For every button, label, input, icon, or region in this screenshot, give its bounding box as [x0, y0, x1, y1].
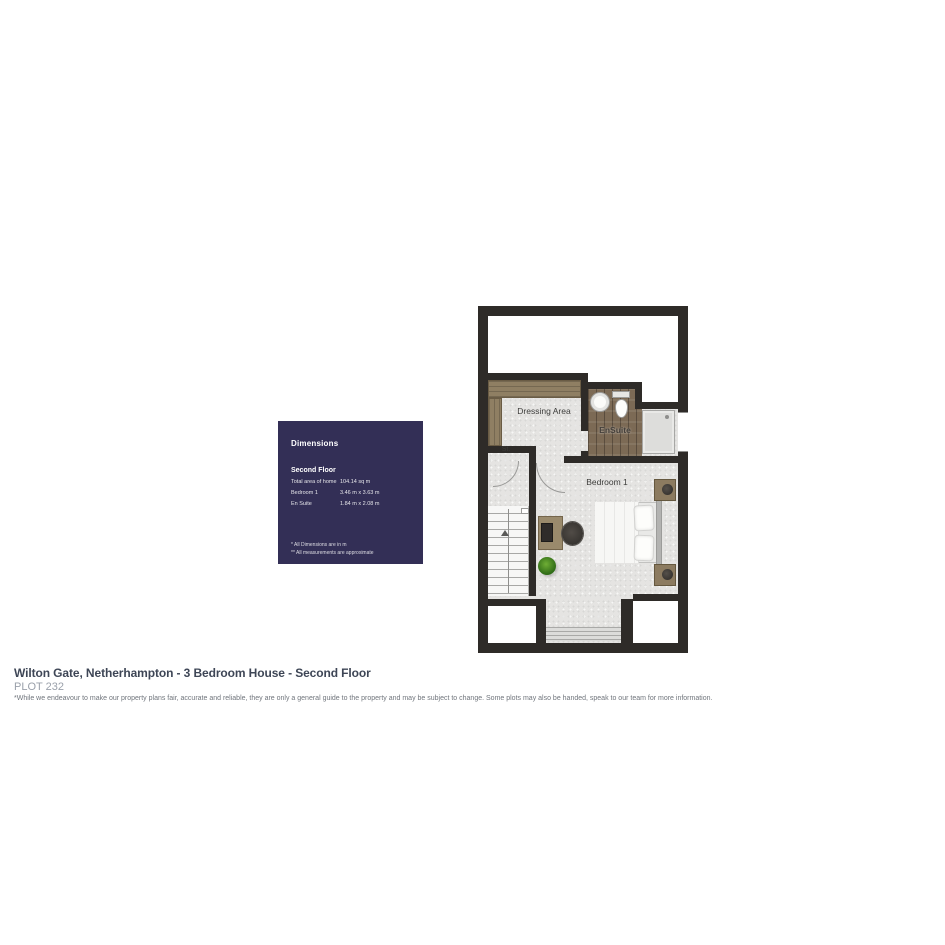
- desk-chair: [562, 522, 583, 545]
- wall: [621, 599, 633, 643]
- void-bottom-right: [633, 601, 678, 643]
- sink-icon: [590, 392, 610, 412]
- wall: [581, 456, 678, 463]
- shower-tray: [642, 410, 675, 454]
- outer-wall-right: [678, 452, 688, 653]
- page-title: Wilton Gate, Netherhampton - 3 Bedroom H…: [14, 666, 371, 680]
- bedside-lamp-icon: [662, 484, 673, 495]
- stairs-landing-mark: [521, 508, 529, 514]
- void-top: [488, 316, 678, 373]
- room-label-dressing-area: Dressing Area: [502, 406, 586, 416]
- room-label-ensuite: EnSuite: [584, 425, 646, 435]
- wall: [581, 382, 642, 389]
- room-label-bedroom-1: Bedroom 1: [576, 477, 638, 487]
- plot-number: PLOT 232: [14, 681, 64, 693]
- wall: [564, 456, 588, 463]
- dimension-label: Total area of home: [291, 479, 337, 485]
- bedside-lamp-icon: [662, 569, 673, 580]
- wall: [536, 599, 546, 643]
- outer-wall-bottom: [478, 643, 688, 653]
- outer-wall-right: [678, 306, 688, 412]
- dimensions-floor-label: Second Floor: [291, 467, 336, 474]
- disclaimer-text: *While we endeavour to make our property…: [14, 695, 712, 702]
- stairs-direction-arrow-icon: [501, 530, 509, 536]
- dimension-row: Bedroom 1 3.46 m x 3.63 m: [291, 490, 416, 496]
- toilet-cistern-icon: [612, 391, 630, 398]
- wall: [635, 402, 678, 409]
- bed-duvet: [595, 502, 639, 563]
- dimension-value: 1.84 m x 2.08 m: [340, 501, 379, 507]
- dimension-value: 104.14 sq m: [340, 479, 370, 485]
- wall: [488, 373, 588, 380]
- bed-headboard: [656, 500, 662, 565]
- dimension-label: En Suite: [291, 501, 312, 507]
- shower-drain-icon: [665, 415, 669, 419]
- wall: [633, 594, 678, 601]
- wardrobe-top: [488, 380, 581, 398]
- void-step-2: [638, 366, 678, 402]
- pillow: [633, 504, 654, 531]
- floor-plan: Dressing Area St. EnSuite Bedroom 1: [478, 306, 688, 653]
- dimensions-footnote: ** All measurements are approximate: [291, 550, 374, 556]
- window-bay-lines: [546, 627, 621, 641]
- dimensions-panel: Dimensions Second Floor Total area of ho…: [278, 421, 423, 564]
- dimension-value: 3.46 m x 3.63 m: [340, 490, 379, 496]
- dimensions-panel-title: Dimensions: [291, 439, 338, 448]
- pillow: [634, 535, 655, 562]
- room-label-storage: St.: [494, 446, 518, 453]
- stairs-rail: [508, 509, 509, 593]
- plant-icon: [538, 557, 556, 575]
- outer-wall-top: [478, 306, 688, 316]
- void-step-1: [581, 366, 642, 382]
- wall: [529, 446, 536, 596]
- wardrobe-left: [488, 398, 502, 446]
- dimensions-footnote: * All Dimensions are in m: [291, 542, 347, 548]
- dimension-row: Total area of home 104.14 sq m: [291, 479, 416, 485]
- outer-wall-left: [478, 306, 488, 653]
- desk-monitor-icon: [541, 523, 553, 542]
- dimension-row: En Suite 1.84 m x 2.08 m: [291, 501, 416, 507]
- void-bottom-left: [488, 606, 536, 643]
- dimension-label: Bedroom 1: [291, 490, 318, 496]
- window: [678, 412, 688, 452]
